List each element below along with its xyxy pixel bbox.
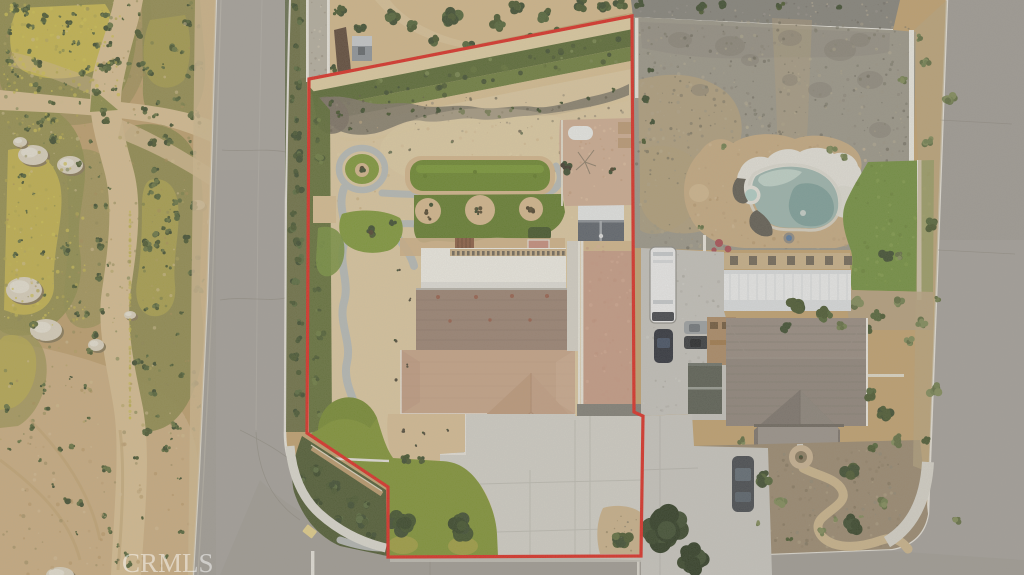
svg-text:CRMLS: CRMLS [122, 548, 214, 575]
